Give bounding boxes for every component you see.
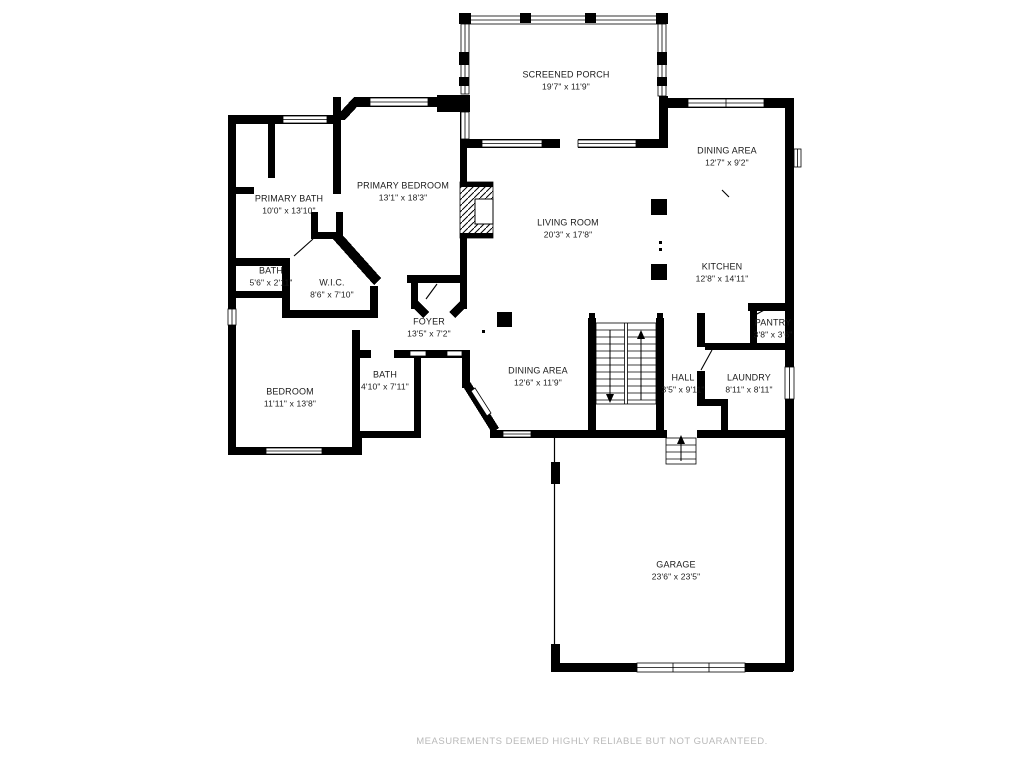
room-name: PRIMARY BEDROOM	[357, 181, 449, 193]
room-name: W.I.C.	[310, 278, 354, 290]
room-dims: 23'6" x 23'5"	[652, 571, 701, 582]
room-dims: 12'7" x 9'2"	[697, 157, 757, 168]
room-dims: 12'8" x 14'11"	[696, 273, 749, 284]
disclaimer-text: MEASUREMENTS DEEMED HIGHLY RELIABLE BUT …	[416, 736, 767, 747]
room-name: BATH	[361, 370, 409, 382]
room-dims: 11'11" x 13'8"	[264, 398, 316, 409]
room-label-primary-bedroom: PRIMARY BEDROOM 13'1" x 18'3"	[357, 181, 449, 204]
room-label-hall: HALL 3'5" x 9'11"	[661, 373, 704, 396]
room-dims: 12'6" x 11'9"	[508, 377, 568, 388]
room-dims: 13'1" x 18'3"	[357, 192, 449, 203]
room-name: GARAGE	[652, 560, 701, 572]
room-name: SCREENED PORCH	[522, 70, 609, 82]
room-name: LIVING ROOM	[537, 218, 599, 230]
floor-plan-canvas: SCREENED PORCH 19'7" x 11'9" DINING AREA…	[0, 0, 1024, 768]
room-dims: 20'3" x 17'8"	[537, 229, 599, 240]
room-name: PANTRY	[754, 318, 793, 330]
room-label-bedroom: BEDROOM 11'11" x 13'8"	[264, 387, 316, 410]
garage-door	[637, 663, 745, 672]
room-label-dining-area-lower: DINING AREA 12'6" x 11'9"	[508, 366, 568, 389]
room-label-screened-porch: SCREENED PORCH 19'7" x 11'9"	[522, 70, 609, 93]
room-name: DINING AREA	[508, 366, 568, 378]
fireplace	[460, 182, 493, 238]
room-dims: 5'6" x 2'11"	[249, 277, 292, 288]
room-dims: 8'11" x 8'11"	[725, 384, 772, 395]
room-name: HALL	[661, 373, 704, 385]
room-label-bath-2: BATH 4'10" x 7'11"	[361, 370, 409, 393]
staircase	[596, 323, 656, 404]
room-dims: 10'0" x 13'10"	[255, 205, 323, 216]
room-name: FOYER	[407, 317, 451, 329]
room-label-primary-bath: PRIMARY BATH 10'0" x 13'10"	[255, 194, 323, 217]
room-label-garage: GARAGE 23'6" x 23'5"	[652, 560, 701, 583]
garage-steps	[666, 435, 696, 464]
stair-arrow-down	[606, 330, 614, 403]
room-name: DINING AREA	[697, 146, 757, 158]
garage-details	[555, 438, 746, 672]
room-dims: 13'5" x 7'2"	[407, 328, 451, 339]
room-dims: 4'10" x 7'11"	[361, 381, 409, 392]
room-dims: 19'7" x 11'9"	[522, 81, 609, 92]
room-label-dining-area-upper: DINING AREA 12'7" x 9'2"	[697, 146, 757, 169]
room-label-laundry: LAUNDRY 8'11" x 8'11"	[725, 373, 772, 396]
room-name: LAUNDRY	[725, 373, 772, 385]
room-name: PRIMARY BATH	[255, 194, 323, 206]
room-label-kitchen: KITCHEN 12'8" x 14'11"	[696, 262, 749, 285]
room-name: KITCHEN	[696, 262, 749, 274]
room-label-foyer: FOYER 13'5" x 7'2"	[407, 317, 451, 340]
room-label-bath-hall: BATH 5'6" x 2'11"	[249, 266, 292, 289]
room-label-living-room: LIVING ROOM 20'3" x 17'8"	[537, 218, 599, 241]
room-name: BATH	[249, 266, 292, 278]
room-dims: 3'8" x 3'6"	[754, 329, 793, 340]
room-name: BEDROOM	[264, 387, 316, 399]
room-dims: 3'5" x 9'11"	[661, 384, 704, 395]
room-label-wic: W.I.C. 8'6" x 7'10"	[310, 278, 354, 301]
room-label-pantry: PANTRY 3'8" x 3'6"	[754, 318, 793, 341]
room-dims: 8'6" x 7'10"	[310, 289, 354, 300]
